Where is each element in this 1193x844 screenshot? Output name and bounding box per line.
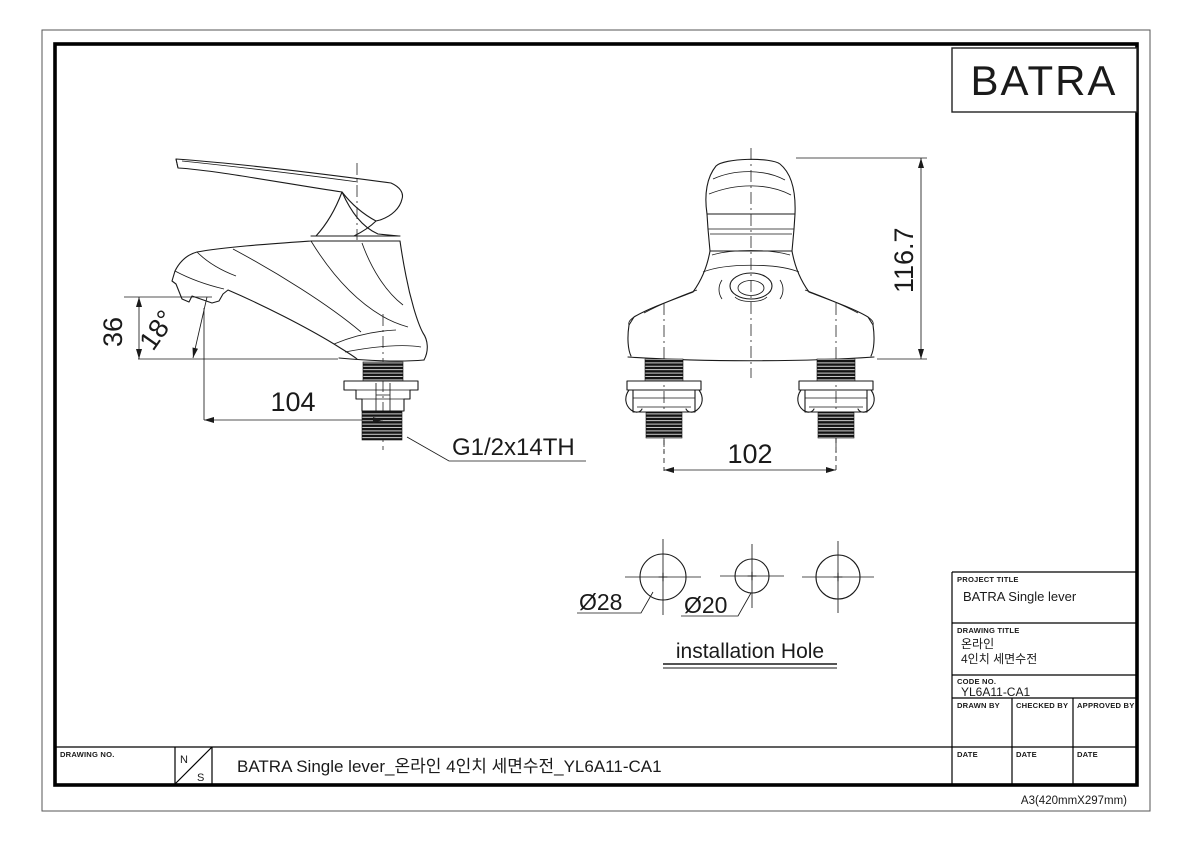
- bottom-strip: DRAWING NO. N S BATRA Single lever_온라인 4…: [55, 747, 952, 785]
- drawn-by-label: DRAWN BY: [957, 701, 1000, 710]
- logo-batra: BATRA: [971, 57, 1118, 104]
- code-no-value: YL6A11-CA1: [961, 685, 1030, 699]
- dim-102: 102: [727, 439, 772, 469]
- scale-n: N: [180, 754, 188, 766]
- front-right-upper-thread: [817, 359, 855, 381]
- thread-spec-label: G1/2x14TH: [452, 434, 575, 461]
- dim-36: 36: [98, 317, 128, 347]
- installation-hole-caption: installation Hole: [676, 640, 824, 663]
- dim-104: 104: [270, 387, 315, 417]
- date-label-2: DATE: [1016, 750, 1037, 759]
- approved-by-label: APPROVED BY: [1077, 701, 1134, 710]
- front-left-lower-thread: [646, 412, 682, 438]
- dim-18deg: 18°: [133, 305, 181, 356]
- hole-dia-20-label: Ø20: [684, 592, 727, 618]
- drawing-title-label: DRAWING TITLE: [957, 626, 1020, 635]
- drawing-title-line1: 온라인: [961, 637, 994, 651]
- date-label-1: DATE: [957, 750, 978, 759]
- dim-116-7: 116.7: [889, 227, 919, 293]
- project-title-value: BATRA Single lever: [963, 589, 1077, 604]
- logo-box: BATRA: [952, 48, 1137, 112]
- front-right-lower-thread: [818, 412, 854, 438]
- drawing-no-label: DRAWING NO.: [60, 750, 115, 759]
- cad-canvas: BATRA: [0, 0, 1193, 844]
- checked-by-label: CHECKED BY: [1016, 701, 1068, 710]
- drawing-title-line2: 4인치 세면수전: [961, 652, 1037, 666]
- side-upper-thread: [363, 362, 403, 381]
- side-view-dimensions: 36 18° 104 G1/2x14TH: [98, 297, 586, 461]
- hole-dia-28-label: Ø28: [579, 589, 622, 615]
- title-block: PROJECT TITLE BATRA Single lever DRAWING…: [952, 572, 1137, 785]
- date-label-3: DATE: [1077, 750, 1098, 759]
- paper-size-note: A3(420mmX297mm): [1021, 795, 1127, 807]
- scale-s: S: [197, 772, 204, 784]
- installation-holes: Ø28 Ø20 installation Hole: [577, 539, 874, 668]
- side-lower-thread: [362, 411, 402, 440]
- drawing-title-strip: BATRA Single lever_온라인 4인치 세면수전_YL6A11-C…: [237, 757, 662, 776]
- drawing-sheet: BATRA: [0, 0, 1193, 844]
- project-title-label: PROJECT TITLE: [957, 575, 1019, 584]
- front-view-drawing: [626, 148, 874, 456]
- front-left-upper-thread: [645, 359, 683, 381]
